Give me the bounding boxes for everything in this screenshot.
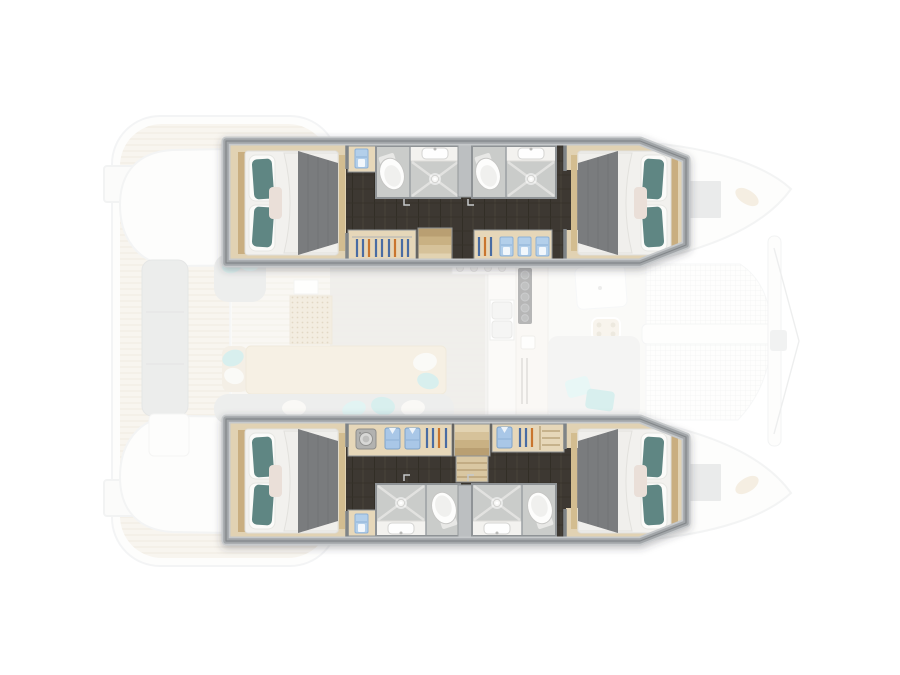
port-forward-bathroom [470,146,556,198]
companionway-stairs [418,228,452,263]
starboard-hull [222,414,692,546]
cockpit-step [149,414,189,456]
starboard-forward-cabin-bed [571,429,678,533]
trampoline-panel [646,264,771,324]
saloon-table-daybed [246,346,446,394]
galley-appliance [521,336,535,349]
bowsprit-fitting [770,330,787,351]
port-forward-cabin-bed [571,151,678,255]
port-hull [222,136,692,268]
saloon-cabinet [294,280,318,294]
companionway-stairs [454,424,490,456]
trampoline-panel [646,344,771,420]
trampoline-crossbar [642,324,774,344]
catamaran-floorplan [0,0,900,675]
cushion [585,388,616,412]
cushion [282,400,306,416]
deck-hatch-starboard [688,464,721,501]
galley-island [488,266,516,418]
starboard-aft-cabin-bed [238,429,345,533]
deck-hatch-port [688,181,721,218]
mast-post [458,485,473,539]
starboard-forward-bathroom [472,484,558,536]
mast-post [458,143,473,197]
port-aft-bathroom [374,146,460,198]
open-shelves [456,456,488,482]
cockpit-bench [142,260,188,416]
perforated-cabinet [290,296,332,344]
starboard-aft-bathroom [376,484,462,536]
port-aft-cabin-bed [238,151,345,255]
catamaran-floorplan-page [0,0,900,675]
